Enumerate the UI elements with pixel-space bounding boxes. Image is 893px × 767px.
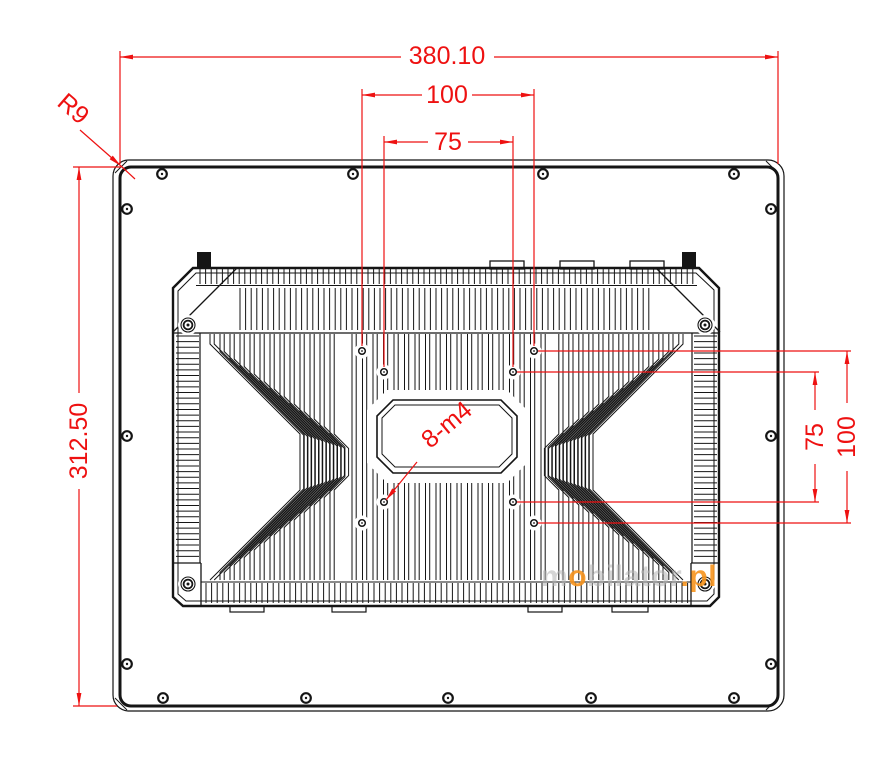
technical-drawing-canvas: 380.10 100 75 312.50 75 100 R9 8-m4 mobi… xyxy=(0,0,893,767)
watermark-text2: bilator xyxy=(587,560,681,593)
watermark: mobilator.pl xyxy=(541,560,717,594)
dim-vesa-top-100: 100 xyxy=(426,81,468,109)
dim-vesa-right-100: 100 xyxy=(833,416,861,458)
watermark-orange-o: o xyxy=(568,560,587,593)
dimension-lines xyxy=(73,51,851,706)
antenna-nub-right xyxy=(682,252,696,268)
dim-corner-radius: R9 xyxy=(52,88,94,130)
antenna-nub-left xyxy=(197,252,211,268)
panel-pc-rear-view-drawing: 380.10 100 75 312.50 75 100 R9 8-m4 xyxy=(0,0,893,767)
watermark-text: m xyxy=(541,560,568,593)
dim-vesa-right-75: 75 xyxy=(801,423,829,451)
dim-overall-width: 380.10 xyxy=(409,42,485,70)
watermark-domain: .pl xyxy=(681,560,718,593)
dim-vesa-top-75: 75 xyxy=(434,128,462,156)
dim-overall-height: 312.50 xyxy=(65,403,93,479)
